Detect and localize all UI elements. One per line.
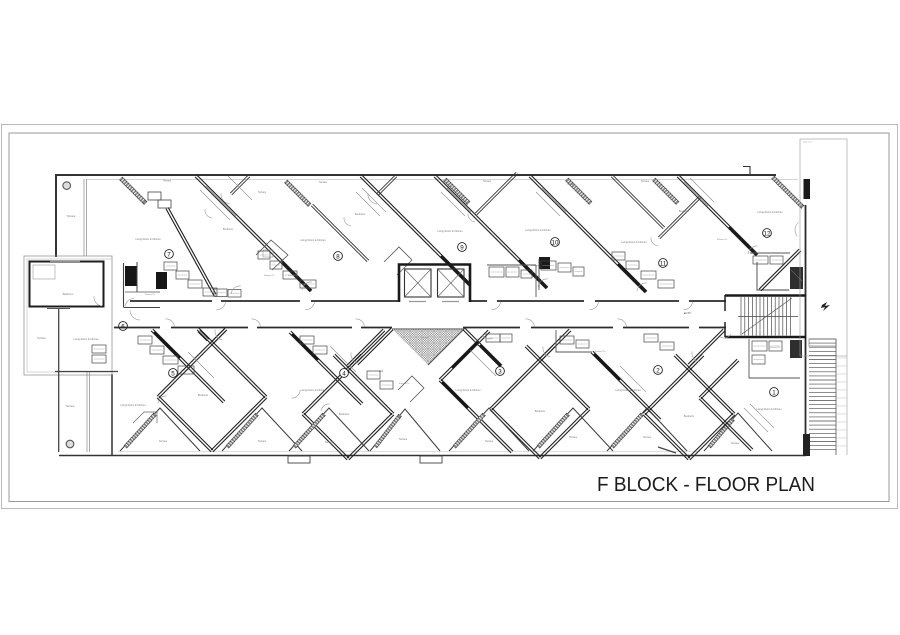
svg-text:Terrace: Terrace [319, 181, 328, 184]
svg-text:Hall: Hall [379, 370, 384, 373]
svg-text:Terrace: Terrace [485, 440, 494, 443]
svg-text:Terrace: Terrace [569, 436, 578, 439]
svg-text:F BLOCK - FLOOR PLAN: F BLOCK - FLOOR PLAN [597, 473, 815, 496]
svg-text:Terrace: Terrace [66, 404, 75, 408]
svg-text:7: 7 [167, 251, 171, 258]
svg-text:4: 4 [342, 370, 346, 377]
svg-text:5: 5 [171, 370, 175, 377]
svg-text:Terrace: Terrace [258, 440, 267, 443]
svg-text:Living Room & Kitchen: Living Room & Kitchen [757, 211, 783, 214]
svg-text:Bedroom: Bedroom [63, 292, 74, 296]
svg-text:Shower/Tu: Shower/Tu [770, 346, 781, 349]
svg-text:Living Room & Kitchen: Living Room & Kitchen [300, 389, 326, 392]
svg-text:Bedroom: Bedroom [684, 415, 694, 418]
svg-text:Terrace: Terrace [258, 191, 267, 194]
svg-text:Bedroom: Bedroom [535, 410, 545, 413]
svg-text:Shower/Tu: Shower/Tu [145, 293, 156, 296]
svg-text:Shower/Tu: Shower/Tu [288, 274, 299, 277]
svg-text:open terr.: open terr. [803, 141, 813, 144]
svg-text:2: 2 [656, 367, 660, 374]
svg-text:Living Room & Kitchen: Living Room & Kitchen [756, 408, 782, 411]
svg-text:Terrace: Terrace [325, 441, 334, 444]
svg-text:Terrace: Terrace [67, 214, 76, 218]
svg-text:Living Room & Kitchen: Living Room & Kitchen [437, 230, 463, 233]
svg-text:1: 1 [772, 389, 776, 396]
svg-text:Living Room & Kitchen: Living Room & Kitchen [615, 389, 641, 392]
svg-text:Living Room & Kitchen: Living Room & Kitchen [525, 229, 551, 232]
svg-text:8: 8 [336, 253, 340, 260]
svg-text:Living Room & Kitchen: Living Room & Kitchen [621, 241, 647, 244]
svg-text:3: 3 [498, 368, 502, 375]
svg-text:Terrace: Terrace [483, 180, 492, 183]
svg-text:Living Room & Kitchen: Living Room & Kitchen [300, 239, 326, 242]
svg-text:Shower/Tu: Shower/Tu [595, 350, 606, 353]
svg-text:Bedroom: Bedroom [339, 413, 349, 416]
svg-text:Terrace: Terrace [159, 440, 168, 443]
svg-text:11: 11 [660, 260, 667, 267]
svg-text:Terrace: Terrace [567, 183, 576, 186]
svg-text:Shower/Tu: Shower/Tu [717, 238, 728, 241]
svg-text:Terrace: Terrace [641, 180, 650, 183]
svg-text:Terrace: Terrace [163, 180, 172, 183]
svg-text:▸F.05: ▸F.05 [684, 311, 691, 315]
svg-text:Terrace: Terrace [643, 436, 652, 439]
svg-text:Living Room & Kitchen: Living Room & Kitchen [455, 389, 481, 392]
svg-text:Bedroom: Bedroom [223, 228, 233, 231]
svg-text:Terrace: Terrace [37, 336, 46, 340]
svg-text:Living Room & Kitchen: Living Room & Kitchen [120, 404, 146, 407]
svg-text:10: 10 [552, 239, 559, 246]
svg-text:Terrace: Terrace [731, 442, 740, 445]
svg-text:Terrace: Terrace [399, 438, 408, 441]
svg-text:Living Room & Kitchen: Living Room & Kitchen [135, 238, 161, 241]
svg-text:Living Room & Kitchen: Living Room & Kitchen [73, 338, 99, 341]
svg-text:Shower/Tu: Shower/Tu [264, 274, 275, 277]
svg-text:Bedroom: Bedroom [355, 213, 365, 216]
svg-text:Bedroom: Bedroom [198, 394, 208, 397]
svg-text:9: 9 [460, 244, 464, 251]
svg-text:Bedroom: Bedroom [679, 210, 689, 213]
svg-text:12: 12 [764, 230, 771, 237]
